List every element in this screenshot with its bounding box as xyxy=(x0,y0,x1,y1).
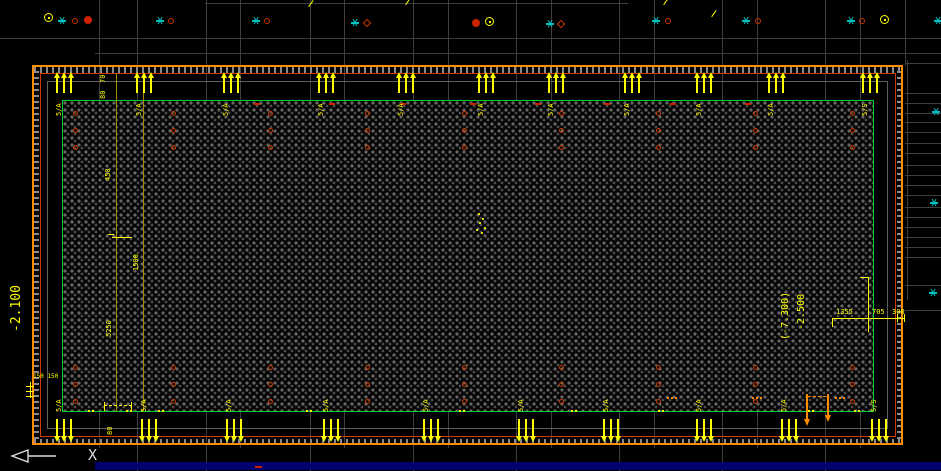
rebar-arrow-stem xyxy=(148,419,150,436)
rebar-arrow-stem xyxy=(318,76,320,93)
pile-circle xyxy=(171,365,176,370)
rebar-arrow-stem xyxy=(562,76,564,93)
rebar-arrow-stem xyxy=(525,419,527,436)
rebar-arrow-down-icon xyxy=(608,436,614,442)
rebar-tick-yellow xyxy=(459,410,467,412)
edge-marker-group: 5/A xyxy=(779,394,801,442)
rebar-arrow-stem xyxy=(332,76,334,93)
ucs-x-axis-label: X xyxy=(88,446,97,464)
rebar-arrow-stem xyxy=(233,419,235,436)
dim-text-pad: 150 150 xyxy=(33,374,58,380)
edge-marker-label: 5/A xyxy=(56,399,63,412)
rebar-tick-red xyxy=(535,103,541,105)
point-marker-star xyxy=(929,289,937,297)
pile-circle xyxy=(73,145,78,150)
grid-line xyxy=(905,207,941,208)
rebar-arrow-down-icon xyxy=(153,436,159,442)
pile-circle xyxy=(171,399,176,404)
cad-viewport[interactable]: 5/A5/A5/A5/A5/A5/A5/A5/A5/A5/A5/S5/A5/A5… xyxy=(0,0,941,471)
pile-circle xyxy=(850,128,855,133)
edge-marker-label: 5/A xyxy=(781,399,788,412)
edge-marker-group: 5/A xyxy=(694,394,716,442)
rebar-tick-red xyxy=(604,103,610,105)
point-marker-target xyxy=(880,15,889,24)
grid-line xyxy=(905,93,941,94)
dim-text-80-top: 80 xyxy=(100,91,107,99)
grid-line xyxy=(905,185,941,186)
rebar-arrow-stem xyxy=(485,76,487,93)
center-mark-dot xyxy=(476,229,478,231)
edge-marker-label: 5/A xyxy=(624,103,631,116)
pile-circle xyxy=(753,382,758,387)
edge-marker-label: 5/A xyxy=(56,103,63,116)
rebar-arrow-stem xyxy=(710,76,712,93)
pile-circle xyxy=(559,145,564,150)
rebar-arrow-down-icon xyxy=(139,436,145,442)
dim-text-5250: 5250 xyxy=(106,320,113,337)
rebar-arrow-stem xyxy=(63,76,65,93)
edge-marker-group: 5/A xyxy=(766,72,788,120)
pile-circle xyxy=(73,382,78,387)
grid-line xyxy=(905,310,941,311)
rebar-arrow-stem xyxy=(136,76,138,93)
rebar-tick-orange xyxy=(667,397,677,399)
rebar-arrow-stem xyxy=(781,419,783,436)
edge-marker-group: 5/A xyxy=(516,394,538,442)
edge-marker-group: 5/A xyxy=(134,72,156,120)
edge-marker-group: 5/A xyxy=(476,72,498,120)
rebar-arrow-stem xyxy=(398,76,400,93)
edge-marker-group: 5/A xyxy=(321,394,343,442)
edge-marker-label: 5/A xyxy=(136,103,143,116)
grid-line xyxy=(905,63,941,64)
dim-text-300: 300 xyxy=(892,309,905,316)
point-marker-target xyxy=(44,13,53,22)
point-marker-star xyxy=(652,17,660,25)
rebar-arrow-stem xyxy=(63,419,65,436)
pile-circle xyxy=(268,145,273,150)
pile-circle xyxy=(753,365,758,370)
point-marker-blob xyxy=(84,16,92,24)
yellow-dim-line xyxy=(868,314,869,322)
rebar-arrow-stem xyxy=(710,419,712,436)
rebar-arrow-stem xyxy=(871,419,873,436)
rebar-arrow-stem xyxy=(56,76,58,93)
rebar-arrow-stem xyxy=(240,419,242,436)
rebar-arrow-down-icon xyxy=(615,436,621,442)
rebar-arrow-down-icon xyxy=(238,436,244,442)
rebar-arrow-down-icon xyxy=(701,436,707,442)
center-mark-dot xyxy=(482,218,484,220)
pile-circle xyxy=(462,365,467,370)
pile-circle xyxy=(753,145,758,150)
rebar-arrow-stem xyxy=(876,76,878,93)
rebar-tick-red xyxy=(254,103,260,105)
rebar-tick-orange xyxy=(752,397,762,399)
center-mark-dot xyxy=(481,232,483,234)
grid-line xyxy=(905,103,941,104)
rebar-arrow-stem xyxy=(337,419,339,436)
rebar-arrow-down-icon xyxy=(708,436,714,442)
rebar-arrow-stem xyxy=(795,419,797,436)
pile-circle xyxy=(462,399,467,404)
pile-circle xyxy=(850,399,855,404)
pile-circle xyxy=(753,128,758,133)
edge-marker-label: 5/A xyxy=(423,399,430,412)
edge-marker-group: 5/A xyxy=(316,72,338,120)
rebar-arrow-stem xyxy=(878,419,880,436)
dashed-detail-callout xyxy=(104,405,132,406)
pile-circle xyxy=(850,111,855,116)
pile-circle xyxy=(268,128,273,133)
yellow-dim-line xyxy=(104,402,105,411)
rebar-arrow-down-icon xyxy=(876,436,882,442)
ucs-icon xyxy=(8,444,118,468)
rebar-arrow-down-icon xyxy=(421,436,427,442)
edge-marker-label: 5/A xyxy=(226,399,233,412)
edge-marker-label: 5/S xyxy=(862,103,869,116)
grid-line xyxy=(905,247,941,248)
center-mark-dot xyxy=(484,227,486,229)
edge-marker-group: 5/A xyxy=(694,72,716,120)
pile-circle xyxy=(171,111,176,116)
rebar-arrow-stem xyxy=(610,419,612,436)
rebar-arrow-down-icon xyxy=(869,436,875,442)
edge-marker-group: 5/A xyxy=(546,72,568,120)
rebar-arrow-stem xyxy=(492,76,494,93)
rebar-arrow-stem xyxy=(532,419,534,436)
pile-circle xyxy=(559,128,564,133)
bottom-red-dash xyxy=(255,466,262,468)
rebar-arrow-stem xyxy=(150,76,152,93)
pile-circle xyxy=(656,145,661,150)
edge-marker-label: 5/S xyxy=(871,399,878,412)
pile-circle xyxy=(656,382,661,387)
rebar-arrow-down-icon xyxy=(224,436,230,442)
rebar-arrow-stem xyxy=(603,419,605,436)
rebar-arrow-stem xyxy=(478,76,480,93)
edge-marker-label: 5/A xyxy=(696,399,703,412)
rebar-tick-yellow xyxy=(808,410,816,412)
rebar-arrow-stem xyxy=(788,419,790,436)
rebar-tick-red xyxy=(745,103,751,105)
rebar-arrow-stem xyxy=(548,76,550,93)
rebar-arrow-stem xyxy=(223,76,225,93)
rebar-arrow-stem xyxy=(782,76,784,93)
grid-line xyxy=(205,3,628,4)
orange-arrow-down-icon xyxy=(825,415,831,422)
pile-circle xyxy=(268,111,273,116)
rebar-arrow-stem xyxy=(226,419,228,436)
rebar-arrow-stem xyxy=(323,419,325,436)
rebar-arrow-stem xyxy=(230,76,232,93)
rebar-arrow-down-icon xyxy=(779,436,785,442)
edge-marker-label: 5/A xyxy=(318,103,325,116)
orange-arrow-stem xyxy=(827,394,829,416)
rebar-arrow-stem xyxy=(405,76,407,93)
edge-marker-group: 5/A xyxy=(421,394,443,442)
rebar-tick-yellow xyxy=(306,410,314,412)
yellow-dim-line xyxy=(832,318,833,327)
point-marker-circle xyxy=(859,18,865,24)
rebar-arrow-stem xyxy=(869,76,871,93)
edge-marker-label: 5/A xyxy=(548,103,555,116)
rebar-arrow-stem xyxy=(518,419,520,436)
edge-marker-group: 5/A xyxy=(139,394,161,442)
rebar-arrow-stem xyxy=(423,419,425,436)
edge-marker-group: 5/A xyxy=(622,72,644,120)
rebar-tick-orange xyxy=(835,397,845,399)
edge-marker-label: 5/A xyxy=(696,103,703,116)
rebar-arrow-stem xyxy=(703,76,705,93)
pile-circle xyxy=(656,365,661,370)
level-text-right: -2.500 xyxy=(797,294,807,330)
center-mark-dot xyxy=(479,222,481,224)
pile-circle xyxy=(559,382,564,387)
center-mark-dot xyxy=(478,213,480,215)
pile-circle xyxy=(365,128,370,133)
point-marker-star xyxy=(351,19,359,27)
yellow-slash-mark xyxy=(663,0,669,5)
edge-marker-label: 5/A xyxy=(223,103,230,116)
dim-text-705: 705 xyxy=(872,309,885,316)
grid-line xyxy=(905,217,941,218)
pile-circle xyxy=(171,145,176,150)
rebar-arrow-down-icon xyxy=(883,436,889,442)
rebar-arrow-stem xyxy=(412,76,414,93)
grid-line xyxy=(905,237,941,238)
edge-marker-label: 5/A xyxy=(478,103,485,116)
edge-marker-group: 5/A xyxy=(224,394,246,442)
grid-line xyxy=(905,227,941,228)
rebar-tick-red xyxy=(670,103,676,105)
pile-circle xyxy=(850,145,855,150)
rebar-arrow-down-icon xyxy=(231,436,237,442)
pile-circle xyxy=(559,399,564,404)
edge-marker-label: 5/A xyxy=(518,399,525,412)
rebar-arrow-stem xyxy=(325,76,327,93)
pile-circle xyxy=(462,111,467,116)
dim-text-1500: 1500 xyxy=(133,254,140,271)
pile-circle xyxy=(268,365,273,370)
point-marker-circle xyxy=(264,18,270,24)
rebar-arrow-down-icon xyxy=(694,436,700,442)
rebar-arrow-stem xyxy=(696,76,698,93)
point-marker-diamond xyxy=(363,19,371,27)
dim-text-70: 70 xyxy=(100,75,107,83)
pile-circle xyxy=(365,382,370,387)
orange-dashed-dim xyxy=(808,396,826,397)
grid-line xyxy=(905,132,941,133)
orange-arrow-stem xyxy=(806,394,808,420)
rebar-arrow-down-icon xyxy=(61,436,67,442)
rebar-arrow-down-icon xyxy=(516,436,522,442)
edge-marker-group: 5/A xyxy=(601,394,623,442)
rebar-arrow-stem xyxy=(141,419,143,436)
yellow-dim-line xyxy=(868,278,869,332)
point-marker-star xyxy=(252,17,260,25)
pile-circle xyxy=(73,365,78,370)
rebar-arrow-stem xyxy=(638,76,640,93)
rebar-arrow-down-icon xyxy=(321,436,327,442)
rebar-arrow-stem xyxy=(696,419,698,436)
rebar-arrow-down-icon xyxy=(523,436,529,442)
grid-line xyxy=(905,285,941,286)
rebar-arrow-down-icon xyxy=(428,436,434,442)
rebar-tick-yellow xyxy=(571,410,579,412)
target-dot xyxy=(48,17,50,19)
level-text-right-alt: (-7.300) xyxy=(781,292,791,340)
pile-circle xyxy=(365,145,370,150)
rebar-arrow-stem xyxy=(70,76,72,93)
rebar-arrow-stem xyxy=(617,419,619,436)
bottom-blue-strip xyxy=(95,462,941,470)
yellow-dim-line xyxy=(30,382,31,398)
rebar-arrow-down-icon xyxy=(601,436,607,442)
pile-circle xyxy=(171,128,176,133)
point-marker-star xyxy=(847,17,855,25)
rebar-arrow-stem xyxy=(624,76,626,93)
edge-marker-group: 5/A xyxy=(54,72,76,120)
point-marker-star xyxy=(742,17,750,25)
rebar-arrow-stem xyxy=(631,76,633,93)
edge-marker-label: 5/A xyxy=(768,103,775,116)
point-marker-star xyxy=(932,108,940,116)
pile-circle xyxy=(73,128,78,133)
yellow-dim-line xyxy=(108,234,114,235)
pile-circle xyxy=(850,365,855,370)
pile-circle xyxy=(559,365,564,370)
point-marker-star xyxy=(934,17,941,25)
pile-circle xyxy=(365,365,370,370)
grid-line xyxy=(905,257,941,258)
rebar-tick-yellow xyxy=(854,410,862,412)
edge-marker-group: 5/S xyxy=(860,72,882,120)
yellow-dim-line xyxy=(112,237,132,238)
olive-dim-line xyxy=(143,85,144,412)
point-marker-diamond xyxy=(557,20,565,28)
rebar-arrow-stem xyxy=(330,419,332,436)
point-marker-star xyxy=(930,199,938,207)
olive-dim-line xyxy=(116,73,117,412)
rebar-arrow-stem xyxy=(768,76,770,93)
pile-circle xyxy=(850,382,855,387)
point-marker-star xyxy=(546,20,554,28)
pile-circle xyxy=(462,382,467,387)
rebar-arrow-stem xyxy=(56,419,58,436)
edge-marker-group: 5/S xyxy=(869,394,891,442)
target-dot xyxy=(489,21,491,23)
rebar-arrow-down-icon xyxy=(530,436,536,442)
dim-text-450: 450 xyxy=(105,168,112,181)
edge-marker-label: 5/A xyxy=(141,399,148,412)
pile-circle xyxy=(656,399,661,404)
pile-circle xyxy=(656,128,661,133)
rebar-arrow-stem xyxy=(237,76,239,93)
rebar-arrow-stem xyxy=(775,76,777,93)
rebar-arrow-down-icon xyxy=(335,436,341,442)
point-marker-circle xyxy=(755,18,761,24)
point-marker-circle xyxy=(665,18,671,24)
rebar-arrow-down-icon xyxy=(786,436,792,442)
grid-line xyxy=(905,122,941,123)
rebar-tick-yellow xyxy=(126,410,134,412)
yellow-slash-mark xyxy=(711,10,717,17)
pile-circle xyxy=(268,399,273,404)
rebar-arrow-down-icon xyxy=(793,436,799,442)
grid-line xyxy=(905,143,941,144)
rebar-arrow-stem xyxy=(885,419,887,436)
rebar-arrow-stem xyxy=(143,76,145,93)
grid-line xyxy=(907,60,908,300)
orange-arrow-down-icon xyxy=(804,419,810,426)
point-marker-star xyxy=(58,17,66,25)
grid-line xyxy=(905,195,941,196)
rebar-arrow-stem xyxy=(70,419,72,436)
dim-text-80-bottom: 80 xyxy=(107,427,114,435)
edge-marker-label: 5/A xyxy=(603,399,610,412)
rebar-arrow-stem xyxy=(862,76,864,93)
grid-line xyxy=(905,153,941,154)
target-dot xyxy=(884,19,886,21)
edge-marker-label: 5/A xyxy=(398,103,405,116)
pile-circle xyxy=(656,111,661,116)
rebar-arrow-down-icon xyxy=(54,436,60,442)
yellow-dim-line xyxy=(131,402,132,411)
edge-marker-group: 5/A xyxy=(54,394,76,442)
grid-line xyxy=(0,38,941,39)
edge-marker-group: 5/A xyxy=(221,72,243,120)
pile-circle xyxy=(753,111,758,116)
pile-circle xyxy=(462,145,467,150)
pile-circle xyxy=(171,382,176,387)
point-marker-circle xyxy=(168,18,174,24)
edge-marker-label: 5/A xyxy=(323,399,330,412)
rebar-arrow-stem xyxy=(437,419,439,436)
rebar-arrow-down-icon xyxy=(435,436,441,442)
pile-circle xyxy=(462,128,467,133)
rebar-tick-yellow xyxy=(658,410,666,412)
grid-line xyxy=(905,175,941,176)
rebar-tick-yellow xyxy=(88,410,96,412)
edge-marker-group: 5/A xyxy=(396,72,418,120)
rebar-arrow-stem xyxy=(155,419,157,436)
level-text-left: -2.100 xyxy=(10,285,23,332)
grid-line xyxy=(95,53,941,54)
rebar-arrow-down-icon xyxy=(328,436,334,442)
point-marker-circle xyxy=(72,18,78,24)
rebar-arrow-stem xyxy=(430,419,432,436)
point-marker-target xyxy=(485,17,494,26)
grid-line xyxy=(905,0,906,66)
pile-circle xyxy=(365,399,370,404)
dim-text-1355: 1355 xyxy=(836,309,853,316)
pile-circle xyxy=(268,382,273,387)
pile-circle xyxy=(753,399,758,404)
point-marker-blob xyxy=(472,19,480,27)
pile-circle xyxy=(365,111,370,116)
rebar-arrow-stem xyxy=(555,76,557,93)
grid-line xyxy=(905,165,941,166)
rebar-arrow-stem xyxy=(703,419,705,436)
rebar-arrow-down-icon xyxy=(146,436,152,442)
point-marker-star xyxy=(156,17,164,25)
rebar-arrow-down-icon xyxy=(68,436,74,442)
